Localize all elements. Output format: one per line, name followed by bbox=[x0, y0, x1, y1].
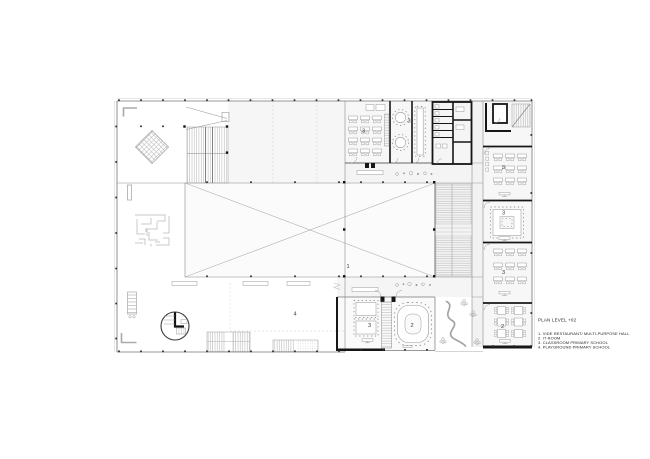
planting-maze bbox=[135, 215, 169, 247]
exterior-stairs bbox=[207, 332, 318, 352]
room-label-right-a: 3 bbox=[502, 165, 505, 171]
room-label-playground: 4 bbox=[293, 312, 296, 318]
legend: PLAN LEVEL +02 1. VIDE RESTAURANT/ MULTI… bbox=[538, 317, 630, 349]
main-stair bbox=[186, 107, 229, 183]
spiral-stair bbox=[161, 312, 189, 340]
room-label-bottom-classroom: 3 bbox=[368, 323, 371, 329]
floor-plan-drawing: 1 3 3 3 3 3 2 3 2 4 PLAN LEVEL +02 1. VI… bbox=[0, 0, 650, 459]
room-label-hall: 1 bbox=[346, 264, 349, 270]
room-label-classroom-top: 3 bbox=[362, 129, 365, 135]
room-label-right-d: 2 bbox=[501, 324, 504, 330]
room-label-right-c: 3 bbox=[502, 270, 505, 276]
top-right-stair bbox=[512, 104, 530, 127]
skylight-diamond bbox=[136, 131, 169, 164]
legend-title: PLAN LEVEL +02 bbox=[538, 317, 577, 322]
room-label-round-tables: 3 bbox=[407, 119, 410, 125]
room-label-right-b: 3 bbox=[502, 211, 505, 217]
room-label-it-room: 2 bbox=[410, 323, 413, 329]
floor-plan-page: 1 3 3 3 3 3 2 3 2 4 PLAN LEVEL +02 1. VI… bbox=[0, 0, 650, 459]
legend-item: 4. PLAYGROUND PRIMARY SCHOOL bbox=[538, 344, 611, 349]
